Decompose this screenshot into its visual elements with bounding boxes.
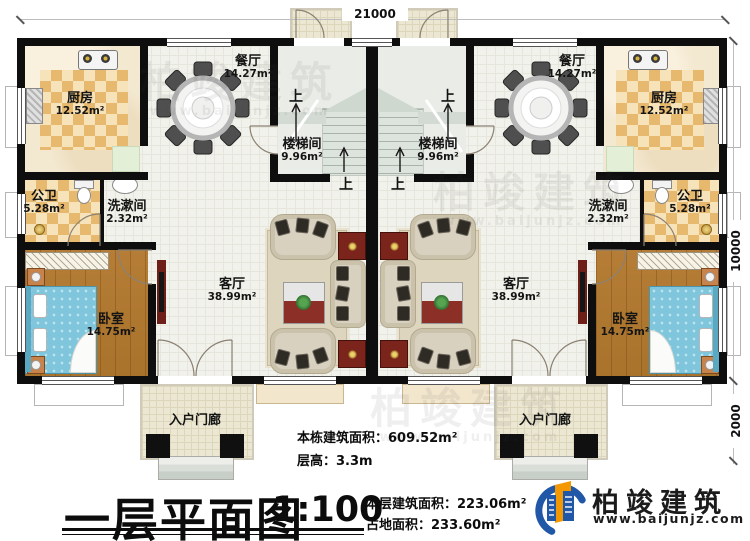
room-label-kitchen-right: 厨房 12.52m² <box>624 92 704 118</box>
room-label-washroom-left: 洗漱间 2.32m² <box>92 200 162 226</box>
floor-area: 本层建筑面积：223.06m² <box>366 493 526 512</box>
door-arc-bedroom-left <box>118 250 152 284</box>
door-arc-porch-right <box>512 340 586 376</box>
room-label-porch-left: 入户门廊 <box>152 414 238 428</box>
title-underline <box>62 528 364 531</box>
floor-height: 层高：3.3m <box>297 450 373 469</box>
door-arc-rear-right <box>420 10 448 38</box>
room-label-living-right: 客厅 38.99m² <box>481 278 551 304</box>
room-label-bedroom-right: 卧室 14.75m² <box>590 313 660 339</box>
stairs-up-label: 上 <box>390 174 406 194</box>
room-label-kitchen-left: 厨房 12.52m² <box>40 92 120 118</box>
porch-column <box>500 434 524 458</box>
door-arc-bath-right <box>644 214 676 246</box>
room-label-porch-right: 入户门廊 <box>502 414 588 428</box>
building-total-area: 本栋建筑面积：609.52m² <box>297 427 457 446</box>
stairs-up-label: 上 <box>338 174 354 194</box>
door-arc-rear-left <box>296 10 324 38</box>
company-logo-icon <box>533 477 591 537</box>
room-label-living-left: 客厅 38.99m² <box>197 278 267 304</box>
stair-arrow <box>340 148 348 172</box>
room-label-dining-left: 餐厅 14.27m² <box>213 55 283 81</box>
company-website: www.baijunjz.com <box>593 511 745 526</box>
stairs-up-label: 上 <box>288 86 304 106</box>
room-label-stairwell-left: 楼梯间 9.96m² <box>267 138 337 164</box>
porch-column <box>146 434 170 458</box>
room-label-dining-right: 餐厅 14.27m² <box>537 55 607 81</box>
porch-column <box>220 434 244 458</box>
room-label-bathroom-left: 公卫 5.28m² <box>14 190 74 216</box>
plan-title: 一层平面图 <box>64 484 304 541</box>
room-label-bedroom-left: 卧室 14.75m² <box>76 313 146 339</box>
porch-column <box>574 434 598 458</box>
door-arcs-overlay <box>0 0 750 541</box>
footprint-area: 占地面积：233.60m² <box>366 514 500 533</box>
room-label-stairwell-right: 楼梯间 9.96m² <box>403 138 473 164</box>
door-arc-bedroom-right <box>592 250 626 284</box>
stairs-up-label: 上 <box>440 86 456 106</box>
floor-plan-page: 厨房 12.52m² 厨房 12.52m² 餐厅 14.27m² 餐厅 14.2… <box>0 0 750 541</box>
title-underline-thin <box>62 534 364 535</box>
door-arc-porch-left <box>158 340 232 376</box>
room-label-washroom-right: 洗漱间 2.32m² <box>573 200 643 226</box>
room-label-bathroom-right: 公卫 5.28m² <box>660 190 720 216</box>
